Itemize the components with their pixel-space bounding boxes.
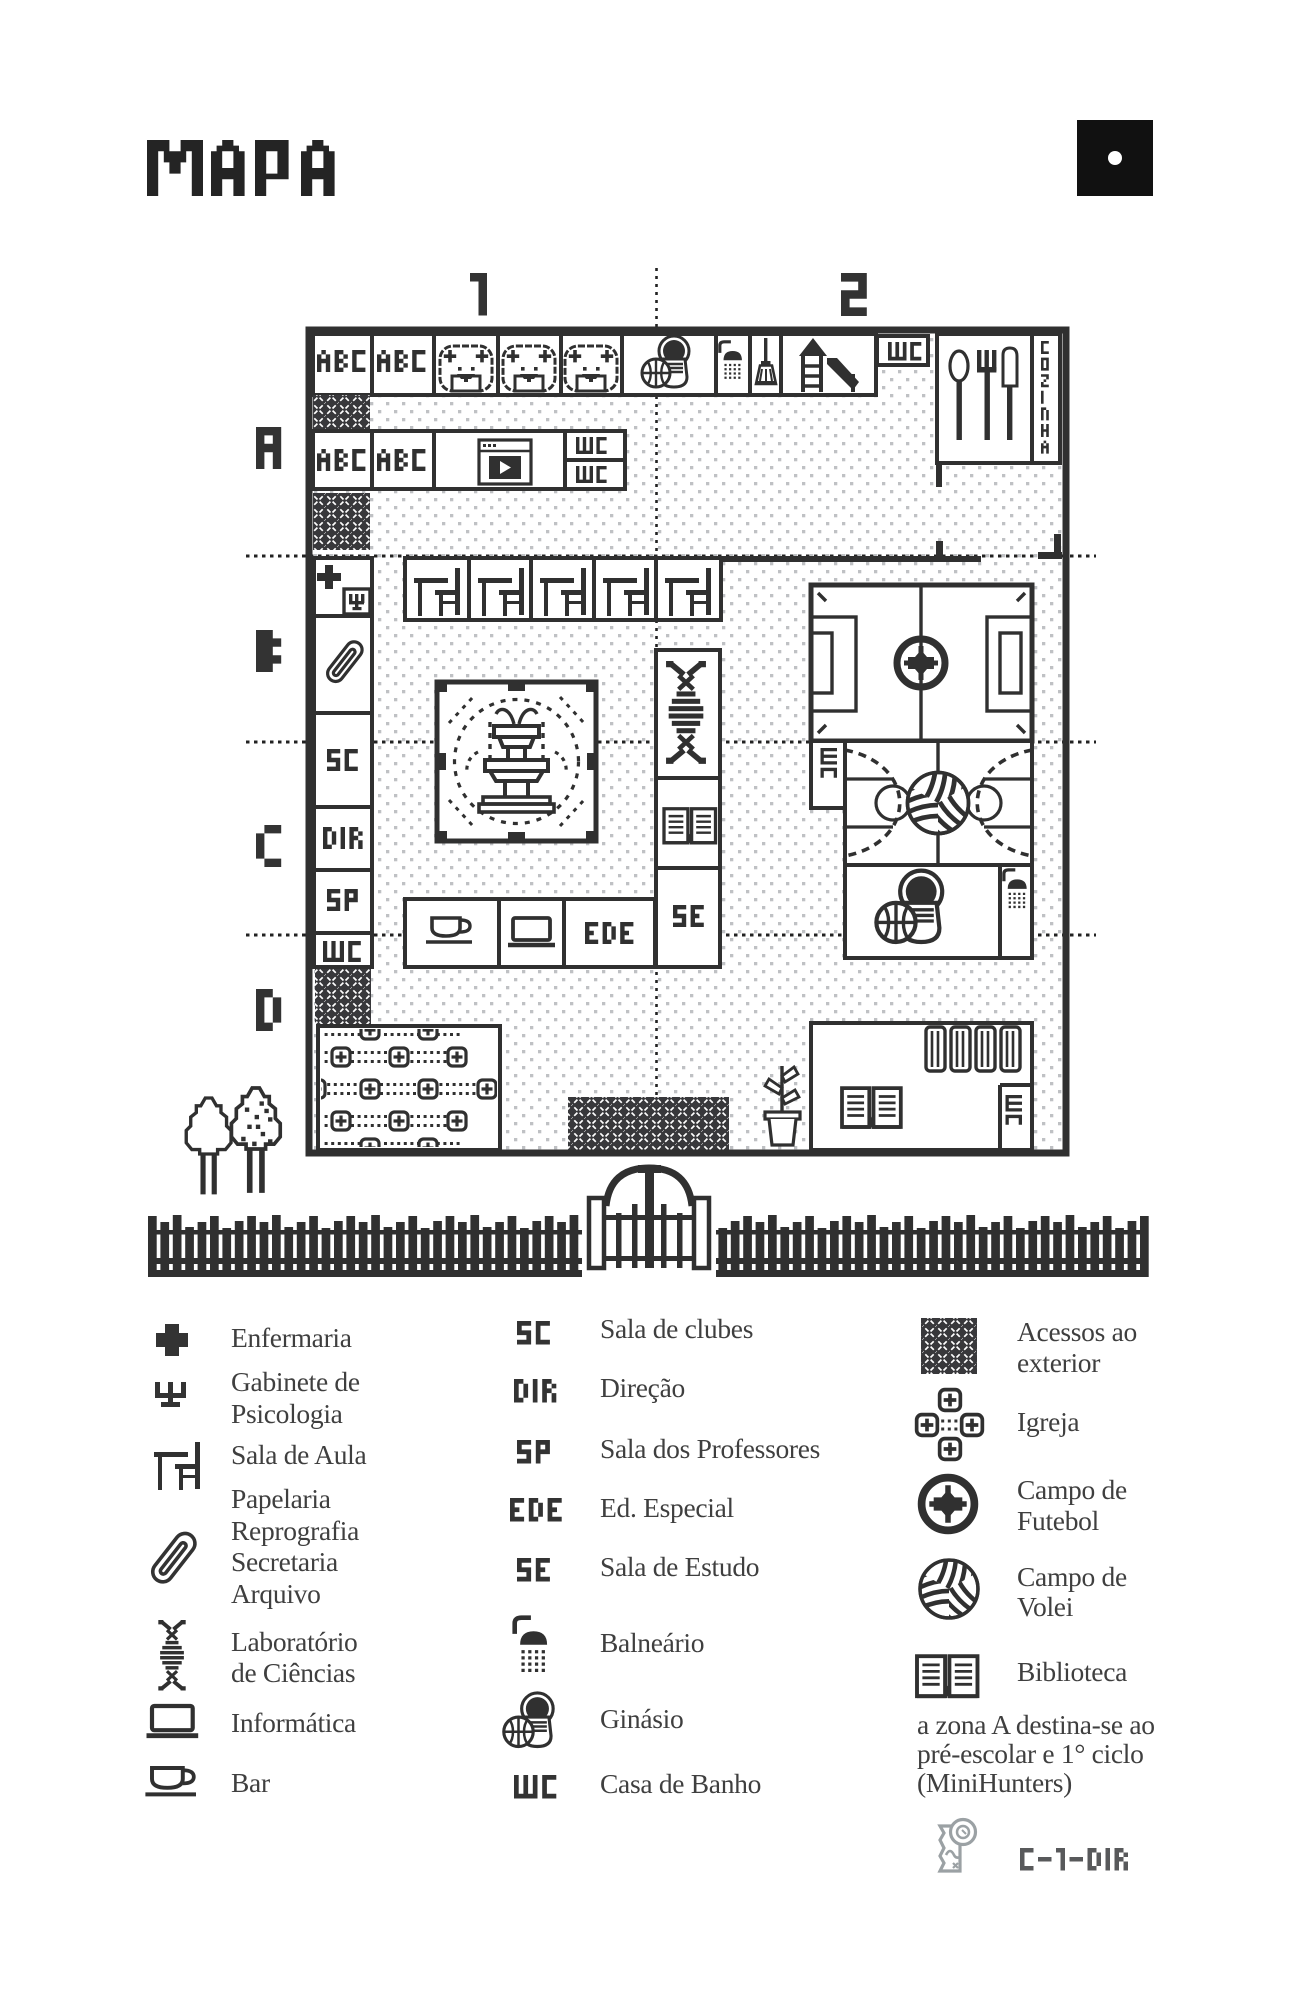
- svg-text:Acessos ao: Acessos ao: [1017, 1316, 1137, 1347]
- svg-text:exterior: exterior: [1017, 1347, 1100, 1378]
- svg-text:Direção: Direção: [600, 1372, 685, 1403]
- svg-text:Sala de Estudo: Sala de Estudo: [600, 1551, 759, 1582]
- svg-text:Ed. Especial: Ed. Especial: [600, 1492, 735, 1523]
- svg-text:Campo de: Campo de: [1017, 1561, 1127, 1592]
- svg-text:Volei: Volei: [1017, 1591, 1074, 1622]
- svg-text:(MiniHunters): (MiniHunters): [917, 1767, 1072, 1798]
- svg-text:Sala de Aula: Sala de Aula: [231, 1439, 366, 1470]
- svg-text:Ginásio: Ginásio: [600, 1703, 683, 1734]
- svg-text:Laboratório: Laboratório: [231, 1626, 358, 1657]
- svg-text:Balneário: Balneário: [600, 1627, 704, 1658]
- svg-text:Reprografia: Reprografia: [231, 1515, 359, 1546]
- svg-text:Sala de clubes: Sala de clubes: [600, 1313, 753, 1344]
- svg-text:Secretaria: Secretaria: [231, 1546, 338, 1577]
- svg-text:Psicologia: Psicologia: [231, 1398, 343, 1429]
- svg-text:pré-escolar e 1° ciclo: pré-escolar e 1° ciclo: [917, 1738, 1144, 1769]
- svg-text:Campo de: Campo de: [1017, 1474, 1127, 1505]
- svg-text:Biblioteca: Biblioteca: [1017, 1656, 1127, 1687]
- svg-text:Enfermaria: Enfermaria: [231, 1322, 352, 1353]
- svg-text:Papelaria: Papelaria: [231, 1483, 331, 1514]
- svg-text:Sala dos Professores: Sala dos Professores: [600, 1433, 820, 1464]
- svg-text:Gabinete de: Gabinete de: [231, 1366, 360, 1397]
- svg-text:a zona A destina-se ao: a zona A destina-se ao: [917, 1709, 1155, 1740]
- svg-text:Informática: Informática: [231, 1707, 356, 1738]
- svg-text:Arquivo: Arquivo: [231, 1578, 321, 1609]
- svg-text:Casa de Banho: Casa de Banho: [600, 1768, 761, 1799]
- svg-text:Igreja: Igreja: [1017, 1406, 1079, 1437]
- svg-text:de Ciências: de Ciências: [231, 1657, 355, 1688]
- svg-text:Futebol: Futebol: [1017, 1505, 1100, 1536]
- svg-text:Bar: Bar: [231, 1767, 270, 1798]
